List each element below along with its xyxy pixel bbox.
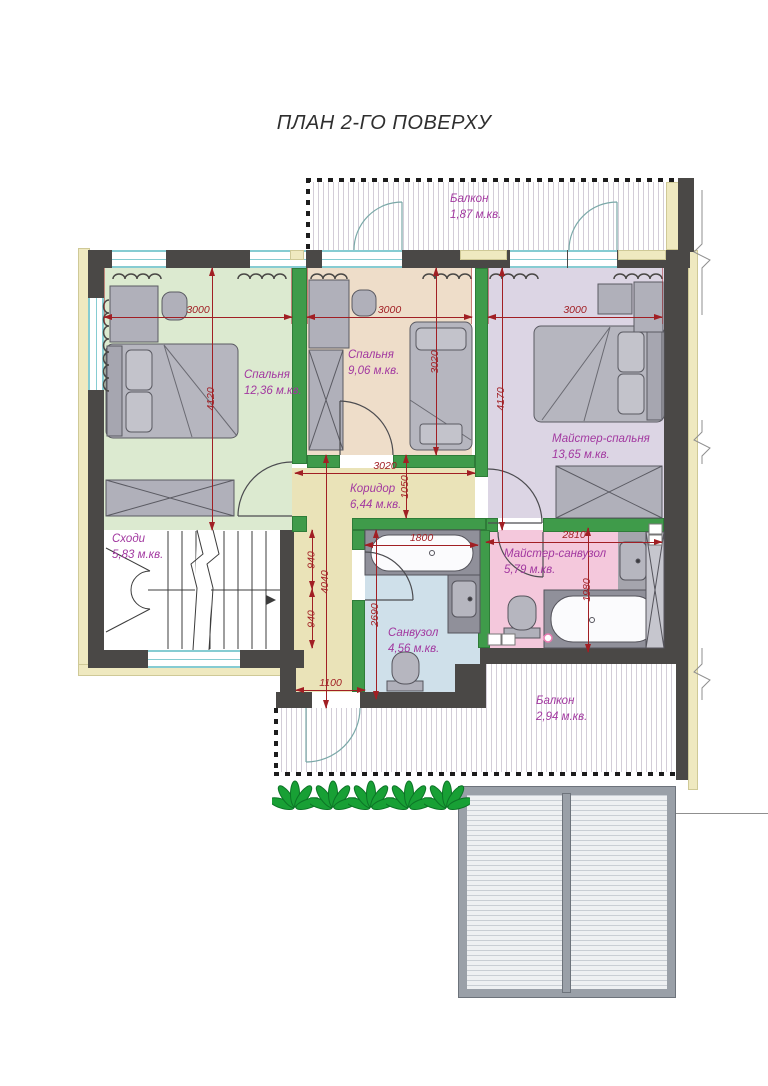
room-name: Балкон	[536, 694, 587, 710]
storage-box	[649, 524, 662, 534]
plant-icon	[306, 781, 360, 812]
dim-master-height: 4170	[502, 268, 503, 530]
room-area: 4,56 м.кв.	[388, 642, 439, 658]
balcony-door-bedroom2	[354, 202, 402, 250]
room-name: Майстер-санвузол	[504, 547, 606, 563]
room-area: 12,36 м.кв.	[244, 384, 302, 400]
break-mark	[694, 190, 710, 315]
break-mark	[694, 648, 710, 700]
room-area: 6,44 м.кв.	[350, 498, 401, 514]
bed-box	[420, 424, 462, 444]
room-area: 5,79 м.кв.	[504, 563, 606, 579]
washbasin	[620, 542, 646, 580]
door-bedroom2	[340, 401, 393, 455]
label-corridor: Коридор 6,44 м.кв.	[350, 482, 401, 513]
chair	[352, 290, 376, 316]
pillow	[618, 332, 644, 372]
dim-bedroom2-width: 3000	[307, 317, 472, 318]
dim-segment-940b: 940	[312, 589, 313, 648]
label-master-bathroom: Майстер-санвузол 5,79 м.кв.	[504, 547, 606, 578]
stair-turn-arc	[131, 571, 150, 609]
cabinet	[634, 282, 663, 332]
plant-icon	[344, 781, 398, 812]
bed-headboard	[647, 328, 662, 420]
plant-icon	[268, 781, 322, 812]
label-bathroom: Санвузол 4,56 м.кв.	[388, 626, 439, 657]
curtain-wave	[113, 274, 161, 279]
room-area: 13,65 м.кв.	[552, 448, 650, 464]
curtain-wave	[238, 274, 286, 279]
plant-icon	[382, 781, 436, 812]
chair	[162, 292, 187, 320]
room-name: Санвузол	[388, 626, 439, 642]
door-master-bedroom	[488, 469, 542, 523]
pillow	[126, 392, 152, 432]
room-name: Майстер-спальня	[552, 432, 650, 448]
faucet	[468, 597, 472, 601]
label-balcony-top: Балкон 1,87 м.кв.	[450, 192, 501, 223]
dim-corridor-height: 4040	[326, 455, 327, 708]
bathtub	[551, 596, 657, 642]
room-area: 1,87 м.кв.	[450, 208, 501, 224]
label-stairs: Сходи 5,83 м.кв.	[112, 532, 163, 563]
balcony-door-master	[569, 202, 617, 250]
dim-master-bath-width: 2810	[486, 542, 662, 543]
dim-corridor-top-height: 1050	[406, 455, 407, 518]
bed-headboard	[107, 346, 122, 436]
room-name: Сходи	[112, 532, 163, 548]
plant-icon	[420, 781, 474, 812]
dim-bedroom1-width: 3000	[104, 317, 292, 318]
laundry-box	[488, 634, 501, 645]
break-mark	[694, 420, 710, 464]
plants-row	[268, 781, 474, 812]
laundry-box	[502, 634, 515, 645]
dim-corridor-bottom-width: 1100	[296, 690, 365, 691]
floor-plan-page: { "title": "ПЛАН 2-ГО ПОВЕРХУ", "rooms":…	[0, 0, 768, 1086]
dim-master-width: 3000	[488, 317, 662, 318]
cabinet	[309, 280, 349, 348]
toilet-bowl	[508, 596, 536, 630]
curtain-wave	[423, 274, 471, 279]
room-name: Спальня	[348, 348, 399, 364]
walk-arrow	[266, 595, 276, 605]
dim-segment-940a: 940	[312, 530, 313, 589]
room-area: 2,94 м.кв.	[536, 710, 587, 726]
dim-bedroom2-height: 3020	[436, 268, 437, 455]
dim-bathroom-height: 2690	[376, 530, 377, 699]
curtain-wave	[311, 274, 347, 279]
room-name: Коридор	[350, 482, 401, 498]
bathroom-fixtures	[365, 530, 480, 691]
label-bedroom1: Спальня 12,36 м.кв.	[244, 368, 302, 399]
faucet	[636, 559, 640, 563]
floor-drain	[544, 634, 552, 642]
label-bedroom2: Спальня 9,06 м.кв.	[348, 348, 399, 379]
door-bedroom1	[238, 462, 292, 516]
balcony-door-corridor	[306, 708, 360, 762]
room-name: Спальня	[244, 368, 302, 384]
dim-bedroom1-height: 4120	[212, 268, 213, 530]
pillow	[126, 350, 152, 390]
bedroom1-furniture	[106, 286, 238, 516]
room-name: Балкон	[450, 192, 501, 208]
desk	[598, 284, 632, 314]
pillow	[416, 328, 466, 350]
pillow	[618, 374, 644, 414]
dim-bathtub-width: 1800	[365, 545, 478, 546]
curtain-wave	[614, 274, 662, 279]
label-master-bedroom: Майстер-спальня 13,65 м.кв.	[552, 432, 650, 463]
room-area: 9,06 м.кв.	[348, 364, 399, 380]
break-marks	[694, 190, 710, 700]
dim-corridor-width: 3020	[295, 473, 475, 474]
wardrobe	[110, 286, 158, 342]
curtain-wave	[490, 274, 538, 279]
label-balcony-bottom: Балкон 2,94 м.кв.	[536, 694, 587, 725]
room-area: 5,83 м.кв.	[112, 548, 163, 564]
